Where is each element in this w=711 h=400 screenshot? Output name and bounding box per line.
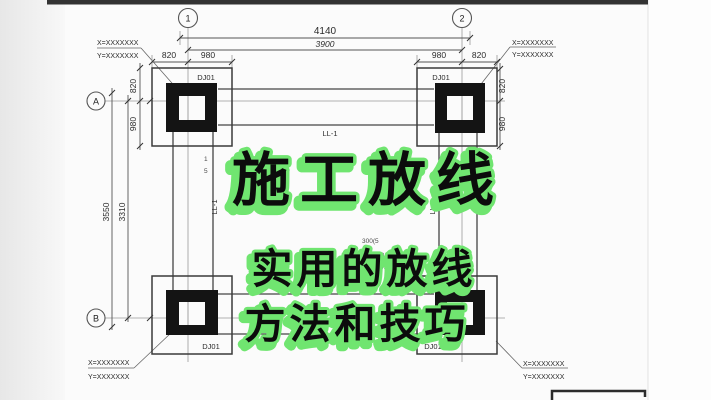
beam-size-fragment: 300(5 — [362, 238, 379, 245]
right-gutter — [648, 0, 711, 400]
coord-x-bottom-right: X=XXXXXXX — [523, 361, 565, 368]
coord-y-bottom-left: Y=XXXXXXX — [88, 374, 130, 381]
fragment-1: 1 — [204, 156, 208, 163]
dim-left-pad-820: 820 — [128, 79, 138, 93]
title-text-layer: 施工放线 实用的放线 方法和技巧 — [232, 148, 504, 347]
pad-label-top-right: DJ01 — [432, 73, 450, 82]
coord-y-bottom-right: Y=XXXXXXX — [523, 374, 565, 381]
video-frame: 1 2 A B 4140 3900 820 980 980 820 3550 3… — [0, 0, 711, 400]
dim-top-left-980: 980 — [201, 50, 215, 60]
left-gutter — [0, 0, 65, 400]
dim-overall-width: 4140 — [314, 26, 337, 37]
dim-right-pad-820: 820 — [497, 79, 507, 93]
overlay-subtitle-1: 实用的放线 — [252, 246, 477, 292]
dim-axis-span: 3900 — [316, 39, 335, 49]
axis-label-b: B — [93, 314, 99, 324]
coord-x-top-right: X=XXXXXXX — [512, 40, 554, 47]
beam-label-left: LL-1 — [210, 199, 219, 214]
coord-y-top-left: Y=XXXXXXX — [97, 53, 139, 60]
axis-label-a: A — [93, 97, 99, 107]
coord-x-bottom-left: X=XXXXXXX — [88, 360, 130, 367]
top-border-bar — [47, 0, 648, 5]
dim-top-right-980: 980 — [432, 50, 446, 60]
pad-label-bottom-left: DJ01 — [202, 342, 220, 351]
coord-x-top-left: X=XXXXXXX — [97, 40, 139, 47]
dim-top-left-820: 820 — [162, 50, 176, 60]
dim-left-pad-980: 980 — [128, 117, 138, 131]
coord-y-top-right: Y=XXXXXXX — [512, 52, 554, 59]
fragment-5: 5 — [204, 168, 208, 175]
axis-label-1: 1 — [185, 14, 190, 24]
dim-right-pad-980: 980 — [497, 117, 507, 131]
pad-label-top-left: DJ01 — [197, 73, 215, 82]
beam-label-top: LL-1 — [322, 129, 337, 138]
dim-top-right-820: 820 — [472, 50, 486, 60]
dim-left-overall: 3550 — [101, 202, 111, 221]
overlay-title: 施工放线 — [232, 148, 504, 213]
construction-drawing: 1 2 A B 4140 3900 820 980 980 820 3550 3… — [0, 0, 711, 400]
overlay-subtitle-2: 方法和技巧 — [245, 301, 470, 347]
axis-label-2: 2 — [459, 14, 464, 24]
dim-left-span: 3310 — [117, 202, 127, 221]
